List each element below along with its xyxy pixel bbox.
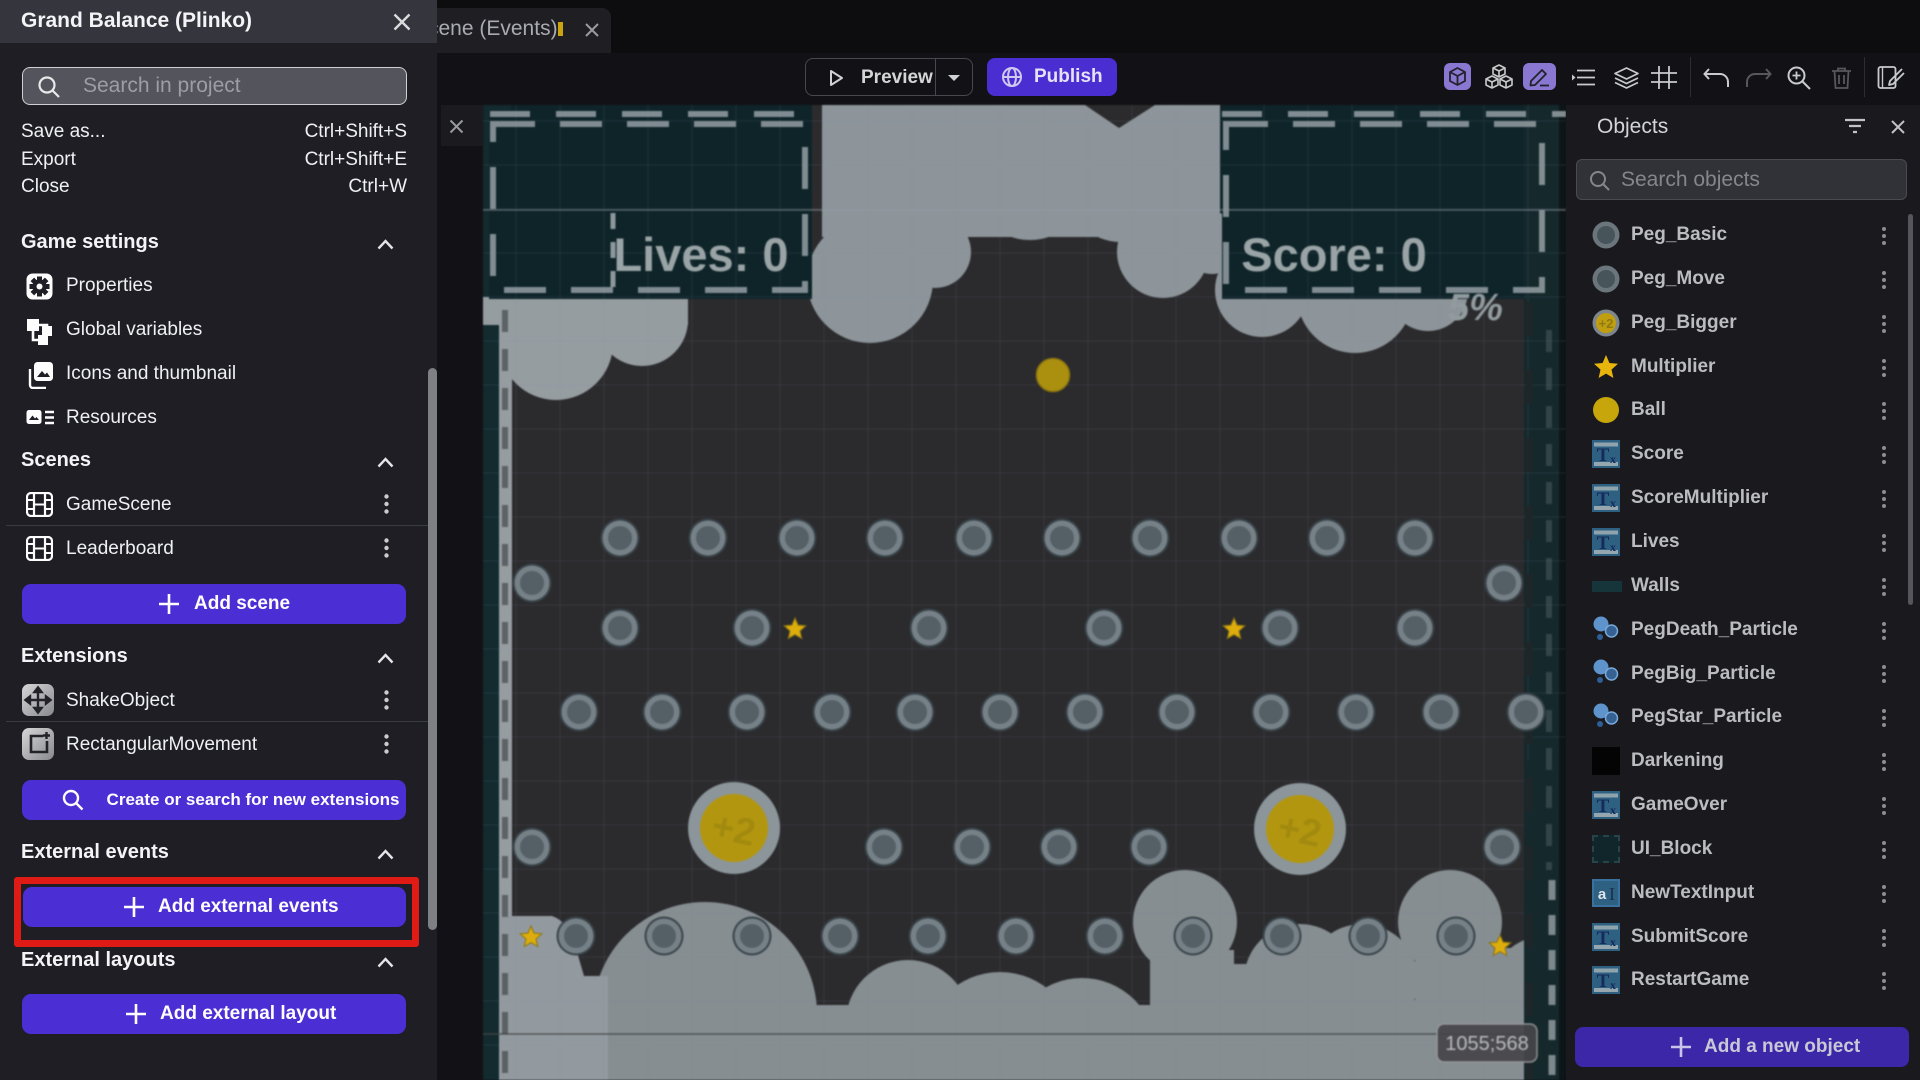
svg-text:+2: +2 (1274, 806, 1325, 856)
svg-text:Score: 0: Score: 0 (1241, 228, 1426, 281)
svg-text:1055;568: 1055;568 (1445, 1033, 1528, 1055)
svg-text:x: x (1610, 803, 1616, 817)
svg-text:x: x (1610, 978, 1616, 992)
svg-text:x: x (1610, 496, 1616, 510)
svg-text:+2: +2 (708, 805, 759, 855)
svg-text:T: T (1597, 796, 1610, 817)
svg-text:5%: 5% (1448, 287, 1503, 329)
svg-text:I: I (1609, 884, 1615, 904)
svg-text:a: a (1598, 886, 1607, 903)
svg-text:T: T (1597, 928, 1610, 949)
svg-text:x: x (1610, 452, 1616, 466)
svg-text:x: x (1610, 935, 1616, 949)
svg-text:T: T (1597, 489, 1610, 510)
svg-text:T: T (1597, 445, 1610, 466)
svg-text:T: T (1597, 533, 1610, 554)
svg-text:x: x (1610, 540, 1616, 554)
svg-text:T: T (1597, 971, 1610, 992)
svg-text:Lives: 0: Lives: 0 (613, 228, 788, 281)
svg-text:+2: +2 (1599, 316, 1614, 331)
